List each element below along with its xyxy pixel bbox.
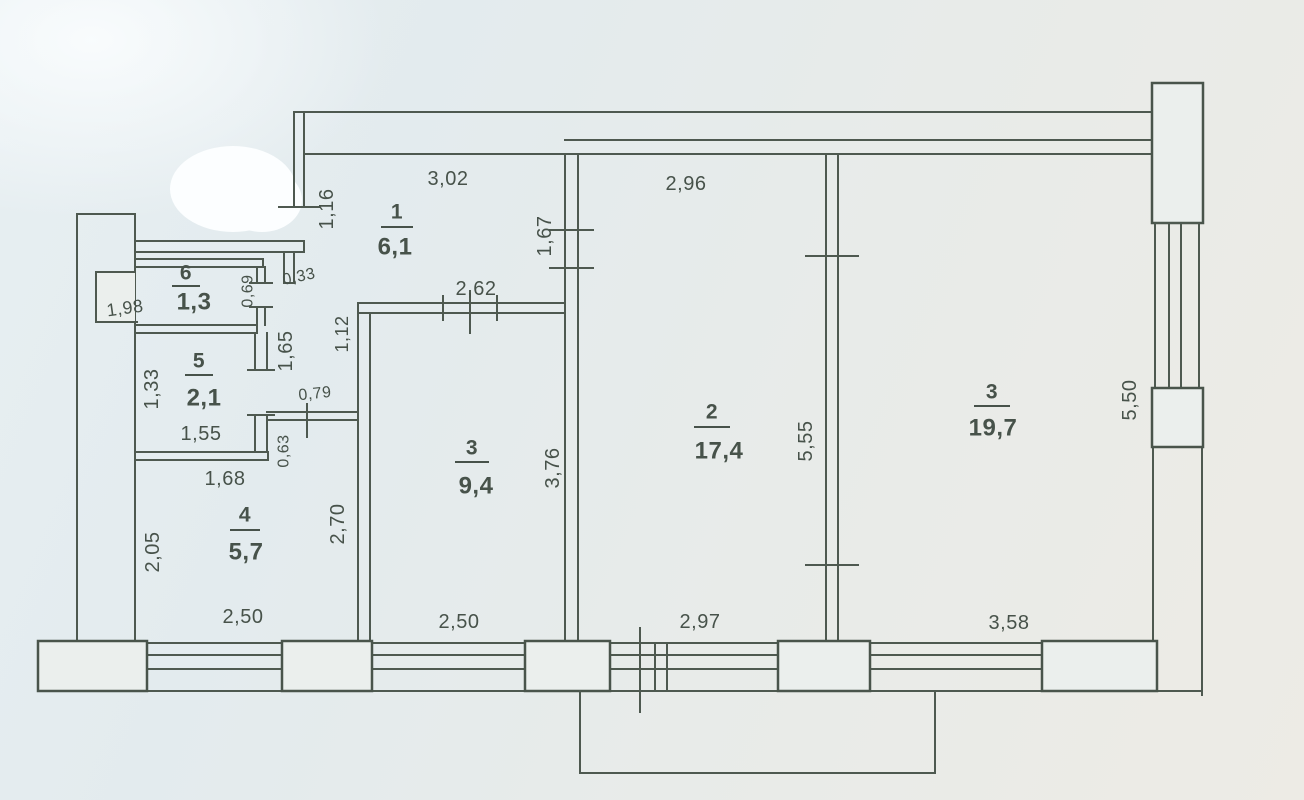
room5-bottom-wall	[135, 452, 268, 460]
hall-room2-wall	[550, 154, 593, 643]
dim-room4-left: 2,05	[142, 532, 164, 573]
balcony-outline	[580, 691, 935, 773]
scan-erasure-blob-2	[222, 168, 302, 232]
room-3a-area: 9,4	[459, 473, 494, 500]
dim-room3b-bottom: 3,58	[989, 612, 1030, 634]
dim-corridor-door: 0,79	[298, 384, 333, 404]
dim-corridor-stub: 0,63	[276, 434, 293, 467]
room-3a-number: 3	[466, 437, 478, 460]
labels: 1 6,1 6 1,3 5 2,1 4 5,7 3 9,4	[105, 168, 1141, 634]
room5-top-wall	[135, 325, 257, 333]
room-label-3a: 3 9,4	[455, 437, 494, 500]
room6-right-wall-lower	[257, 307, 265, 325]
room-label-2: 2 17,4	[694, 401, 744, 465]
dim-room2-top: 2,96	[666, 173, 707, 195]
room-label-4: 4 5,7	[229, 504, 264, 566]
room-5-area: 2,1	[187, 385, 222, 412]
room2-room3b-wall-lines	[826, 154, 838, 643]
room-label-3b: 3 19,7	[969, 381, 1018, 442]
room-6-area: 1,3	[177, 289, 212, 316]
right-wall-structures	[1152, 83, 1203, 447]
room-3b-area: 19,7	[969, 415, 1018, 442]
dim-hall-right: 1,67	[534, 216, 556, 257]
dim-room6-width: 1,98	[105, 296, 144, 321]
dim-room3a-left-upper: 1,12	[332, 315, 352, 352]
right-top-column	[1152, 83, 1203, 223]
room-4-number: 4	[239, 504, 251, 527]
dim-room6-height: 0,69	[240, 274, 257, 307]
room-2-number: 2	[706, 401, 718, 424]
upper-interior-walls	[135, 241, 304, 283]
hall-room2-door-ticks	[550, 230, 593, 268]
dim-room3a-right: 3,76	[542, 448, 564, 489]
pier-2	[282, 641, 372, 691]
dim-room5-bottom: 1,68	[205, 468, 246, 490]
room-label-6: 6 1,3	[172, 262, 211, 316]
room-label-5: 5 2,1	[185, 350, 221, 412]
room2-room3b-ticks	[806, 256, 858, 565]
dim-hall-top: 3,02	[428, 168, 469, 190]
room-1-area: 6,1	[378, 234, 413, 261]
room5-right-wall-upper	[255, 333, 267, 370]
bottom-wall-outer-line	[38, 691, 1202, 695]
dim-balcony-window: 2,97	[680, 611, 721, 633]
dim-room3b-right: 5,50	[1119, 380, 1141, 421]
scanned-floor-plan-page: 1 6,1 6 1,3 5 2,1 4 5,7 3 9,4	[0, 0, 1304, 800]
room6-right-wall-upper	[257, 267, 265, 283]
bottom-wall-structures	[38, 628, 1157, 712]
room-4-area: 5,7	[229, 539, 264, 566]
room3a-walls	[358, 291, 565, 643]
room-1-number: 1	[391, 201, 403, 224]
dim-corridor-left: 1,65	[275, 331, 297, 372]
right-window	[1155, 223, 1199, 388]
room5-door-ticks	[248, 370, 274, 415]
room3a-left-wall	[358, 303, 370, 643]
room-3b-number: 3	[986, 381, 998, 404]
dim-room3a-top: 2,62	[456, 278, 497, 300]
dim-room5-left: 1,33	[141, 369, 163, 410]
room-5-number: 5	[193, 350, 205, 373]
balcony	[580, 691, 935, 773]
room-label-1: 1 6,1	[378, 201, 413, 261]
room3a-top-wall	[358, 303, 565, 313]
hall-room2-wall-lines	[565, 154, 578, 643]
right-pier	[1152, 388, 1203, 447]
room-2-area: 17,4	[695, 438, 744, 465]
dim-room4-right: 2,70	[327, 504, 349, 545]
dim-wall-gap: 0,33	[281, 265, 317, 289]
dim-window-a: 2,50	[223, 606, 264, 628]
dim-hall-left: 1,16	[316, 189, 338, 230]
corridor-wall	[267, 412, 358, 420]
dim-room2-right: 5,55	[795, 421, 817, 462]
pier-5	[1042, 641, 1157, 691]
pier-4	[778, 641, 870, 691]
pier-3	[525, 641, 610, 691]
room2-room3b-wall	[806, 154, 858, 643]
room-6-number: 6	[180, 262, 192, 285]
room5-right-wall-lower	[255, 415, 267, 452]
pier-1	[38, 641, 147, 691]
room6-top-wall	[137, 259, 263, 267]
floor-plan-drawing: 1 6,1 6 1,3 5 2,1 4 5,7 3 9,4	[0, 0, 1304, 800]
dim-room5-width: 1,55	[181, 423, 222, 445]
balcony-door-jambs	[655, 643, 667, 691]
corridor-walls	[267, 404, 358, 437]
dim-window-b: 2,50	[439, 611, 480, 633]
